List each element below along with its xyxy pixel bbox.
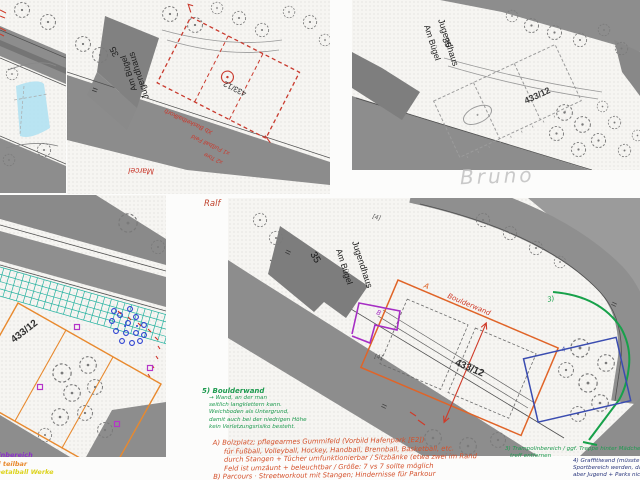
tree-icon — [80, 357, 97, 374]
tree-icon — [76, 37, 91, 52]
note-fragments-bottom-left: llinbereich el teilbar metalball Werke — [0, 451, 54, 477]
tree-icon — [618, 144, 630, 156]
tree-icon — [253, 213, 266, 226]
note-line: seitlich langklettern kann. — [209, 402, 307, 409]
path-curves — [444, 58, 602, 99]
note-line: damit auch bei der niedrigen Höhe — [209, 417, 307, 424]
site-plan-marcel: 433/12 Jugendhaus Am Bügel 35 = Xb Baske… — [67, 0, 330, 194]
tree-icon — [571, 339, 589, 357]
note-line: 4) Graffitiwand (müsste einzeln abgetren… — [573, 458, 640, 465]
tree-icon — [163, 7, 178, 22]
tree-icon — [255, 23, 268, 36]
parcel-label: 433/12 — [9, 318, 40, 346]
tree-icon — [283, 6, 295, 18]
tree-icon — [571, 142, 585, 156]
tree-icon — [88, 380, 103, 395]
tree-icon — [557, 105, 573, 121]
tree-icon — [15, 3, 30, 18]
tree-icon — [53, 364, 71, 382]
tree-icon — [6, 68, 18, 80]
scanned-site-plan-collage: 433/12 Jugendhaus Am Bügel 35 = Xb Baske… — [0, 0, 640, 480]
purple-structure-b: B — [352, 303, 400, 343]
tree-icon — [319, 34, 330, 46]
note-boulderwand: 5) Boulderwand → Wand, an der man seitli… — [202, 387, 307, 431]
site-plan-cropped-left — [0, 0, 66, 193]
name-bruno: Bruno — [460, 163, 535, 190]
note-line: Weichboden als Untergrund, — [209, 409, 307, 416]
note-line: Sportbereich werden, damit immer zugängl… — [573, 465, 640, 472]
tree-icon — [575, 117, 591, 133]
tree-icon — [549, 126, 563, 140]
tree-icon — [232, 11, 245, 24]
field-label-a: A — [421, 281, 430, 292]
note-line: kein Verletzungsrisiko besteht. — [209, 424, 307, 431]
tree-icon — [52, 409, 69, 426]
red-field-word: Boulderwand — [446, 292, 492, 318]
name-ralf: Ralf — [204, 199, 220, 209]
tree-icon — [211, 2, 223, 14]
tree-icon — [303, 15, 316, 28]
parcel-label: 433/12 — [222, 79, 248, 98]
note-boulderwand-title: 5) Boulderwand — [202, 387, 307, 395]
pencil-mark-4a: [4] — [371, 213, 382, 222]
rectangle-label-4: 4 — [560, 345, 566, 354]
note-bolzplatz: A) Bolzplatz; pflegearmes Gummifeld (Vor… — [213, 435, 477, 480]
note-fragment-yellow: metalball Werke — [0, 468, 54, 477]
note-graffitiwand: 4) Graffitiwand (müsste einzeln abgetren… — [573, 458, 640, 479]
site-plan-bruno: 433/12 Jugendhaus Am Bügel 35 — [352, 0, 640, 170]
tree-icon — [597, 101, 608, 112]
tree-icon — [598, 355, 615, 372]
note-fragment-purple: llinbereich — [0, 451, 54, 460]
tree-icon — [591, 133, 605, 147]
note-line: aber Jugend + Parks nicht über den Sport… — [573, 472, 640, 479]
name-marcel: Marcel — [127, 166, 154, 177]
tree-icon — [632, 130, 640, 141]
note-line: 3) Trampolinbereich / ggf. Treppe hinter… — [505, 446, 640, 453]
tree-icon — [559, 363, 574, 378]
tree-icon — [579, 374, 597, 392]
perimeter-label-3: 3) — [546, 294, 555, 304]
note-fragment-orange: el teilbar — [0, 460, 54, 469]
structure-label-b: B — [375, 308, 382, 317]
tree-icon — [41, 15, 56, 30]
red-tick-marks — [118, 311, 160, 377]
site-plan-teal-grid: 433/12 — [0, 195, 166, 457]
tree-icon — [608, 116, 620, 128]
note-line: → Wand, an der man — [209, 395, 307, 402]
tree-icon — [64, 385, 81, 402]
